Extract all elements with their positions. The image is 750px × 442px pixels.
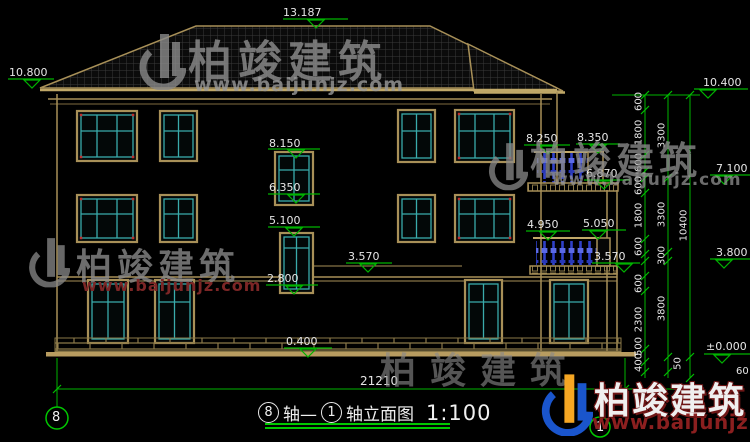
dim-total: 10400 <box>679 208 690 244</box>
level-left-eave: 10.800 <box>9 66 48 79</box>
dim-segment: 3800 <box>657 291 668 327</box>
title-axis-from: 8 <box>258 402 279 423</box>
window <box>465 280 502 343</box>
level-ground: ±0.000 <box>706 340 747 353</box>
level-plinth: 0.400 <box>286 335 318 348</box>
level-mid-slab: 3.570 <box>348 250 380 263</box>
title-suffix: 轴立面图 <box>346 400 414 425</box>
window <box>77 195 137 242</box>
axis-label-8: 8 <box>52 410 60 425</box>
window <box>550 280 588 343</box>
title-scale: 1:100 <box>426 401 492 425</box>
level-floor2: 3.800 <box>716 246 748 259</box>
level-stair-upper-sill: 6.350 <box>269 181 301 194</box>
dim-segment: 600 <box>634 266 645 302</box>
level-balcony-right: 5.050 <box>583 217 615 230</box>
watermark-url: www.baijunjz.com <box>592 410 750 434</box>
watermark-url: www.baijunjz.com <box>552 170 742 190</box>
dim-segment: 3300 <box>657 197 668 233</box>
level-stair-lower-head: 5.100 <box>269 214 301 227</box>
dim-segment: 600 <box>634 229 645 265</box>
level-balcony-slab: 3.570 <box>594 250 626 263</box>
level-stair-lower-sill: 2.800 <box>267 272 299 285</box>
watermark-url: www.baijunjz.com <box>194 74 404 96</box>
window <box>398 110 435 162</box>
watermark-url: www.baijunjz.com <box>82 276 261 295</box>
brand-logo-icon <box>26 234 70 288</box>
level-ridge: 13.187 <box>283 6 322 19</box>
level-right-eave: 10.400 <box>703 76 742 89</box>
window <box>160 195 197 242</box>
window <box>160 111 197 161</box>
level-stair-upper-head: 8.150 <box>269 137 301 150</box>
window <box>77 111 137 161</box>
title-axis-sep: 轴— <box>283 400 317 425</box>
window <box>398 195 435 242</box>
brand-logo-color-icon <box>538 370 593 436</box>
balcony-railing <box>536 238 598 265</box>
brand-logo-icon <box>136 28 186 92</box>
stair-window <box>275 152 313 205</box>
level-balcony-left: 4.950 <box>527 218 559 231</box>
dim-segment: 300 <box>657 238 668 274</box>
cad-elevation-canvas: 13.187 10.800 10.400 8.150 6.350 5.100 2… <box>0 0 750 442</box>
brand-logo-icon <box>486 138 528 192</box>
window <box>455 195 514 242</box>
drawing-title: 8 轴— 1 轴立面图 1:100 <box>258 400 492 425</box>
title-axis-to: 1 <box>321 402 342 423</box>
